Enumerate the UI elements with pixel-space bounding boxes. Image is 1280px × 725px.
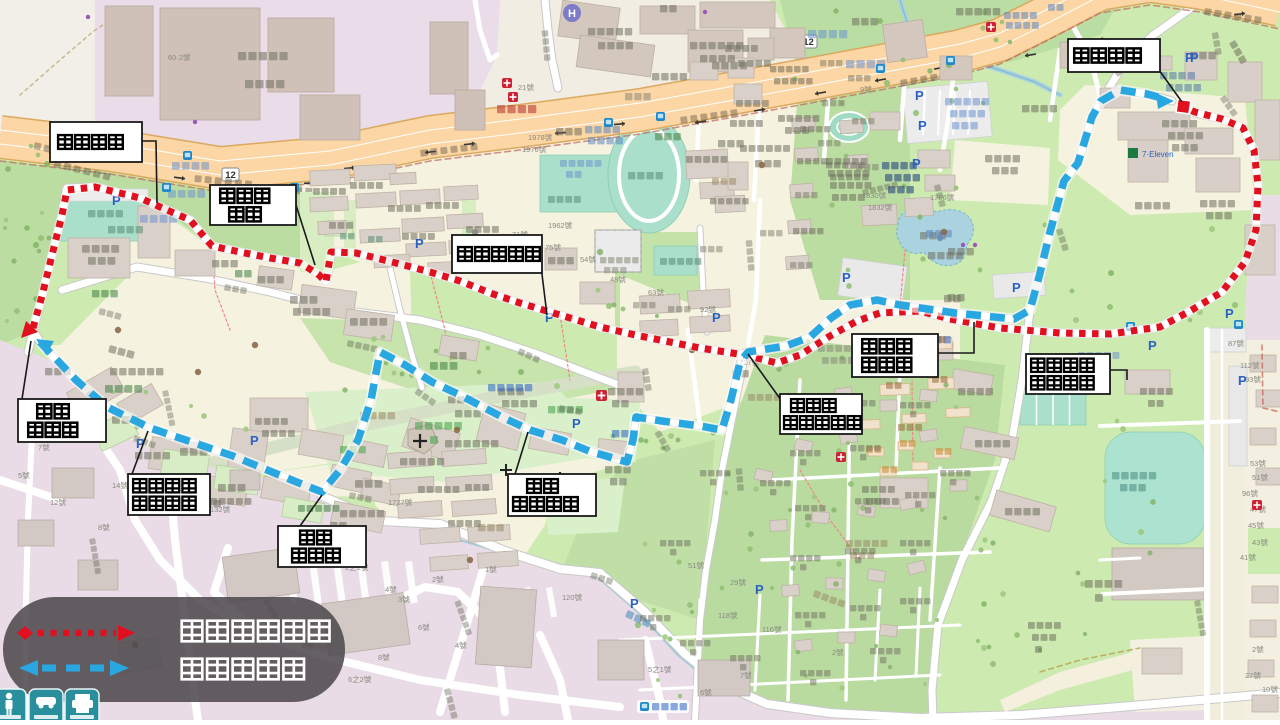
svg-text:P: P (1190, 50, 1199, 65)
svg-text:8號: 8號 (98, 522, 110, 532)
svg-text:14號: 14號 (112, 480, 128, 490)
svg-text:P: P (250, 433, 259, 448)
svg-text:P: P (1225, 306, 1234, 321)
svg-text:48號: 48號 (610, 274, 626, 284)
svg-text:P: P (915, 88, 924, 103)
svg-text:6號: 6號 (418, 622, 430, 632)
svg-text:5號: 5號 (18, 470, 30, 480)
svg-text:10號: 10號 (1262, 684, 1278, 694)
svg-text:3號: 3號 (398, 594, 410, 604)
svg-text:P: P (755, 582, 764, 597)
svg-text:8號: 8號 (378, 652, 390, 662)
svg-text:2號: 2號 (1252, 644, 1264, 654)
svg-text:132號: 132號 (210, 504, 231, 514)
svg-text:1727號: 1727號 (388, 497, 413, 507)
svg-text:45號: 45號 (1248, 520, 1264, 530)
svg-text:53號: 53號 (1250, 458, 1266, 468)
svg-text:93號: 93號 (1245, 374, 1261, 384)
svg-text:54號: 54號 (580, 254, 596, 264)
svg-text:P: P (912, 156, 921, 171)
svg-text:60·2號: 60·2號 (168, 52, 191, 62)
svg-text:P: P (918, 118, 927, 133)
svg-text:2號: 2號 (832, 647, 844, 657)
svg-text:H: H (568, 8, 576, 20)
svg-text:120號: 120號 (562, 592, 583, 602)
svg-text:P: P (1012, 280, 1021, 295)
svg-text:1976號: 1976號 (522, 144, 547, 154)
svg-text:118號: 118號 (718, 610, 738, 620)
svg-text:4號: 4號 (385, 584, 397, 594)
svg-text:51號: 51號 (688, 560, 704, 570)
svg-text:7號: 7號 (38, 442, 50, 452)
svg-text:P: P (712, 310, 721, 325)
svg-text:P: P (572, 416, 581, 431)
svg-text:P: P (415, 236, 424, 251)
svg-text:7號: 7號 (740, 670, 752, 680)
svg-text:4號: 4號 (455, 640, 467, 650)
svg-text:P: P (630, 596, 639, 611)
svg-text:9號: 9號 (860, 84, 872, 94)
svg-text:P: P (842, 270, 851, 285)
svg-text:1766號: 1766號 (930, 192, 955, 202)
svg-text:1832號: 1832號 (868, 202, 893, 212)
svg-text:29號: 29號 (730, 577, 746, 587)
svg-text:2號: 2號 (432, 574, 444, 584)
svg-text:116號: 116號 (762, 624, 782, 634)
svg-text:41號: 41號 (1240, 552, 1256, 562)
svg-text:112號: 112號 (1240, 360, 1260, 370)
svg-text:21號: 21號 (518, 82, 534, 92)
svg-text:6號: 6號 (700, 687, 712, 697)
svg-text:P: P (1148, 338, 1157, 353)
svg-text:12號: 12號 (50, 497, 66, 507)
svg-text:P: P (1238, 373, 1247, 388)
svg-text:1978號: 1978號 (528, 132, 553, 142)
svg-text:7·Eleven: 7·Eleven (1142, 150, 1174, 159)
svg-text:87號: 87號 (1228, 338, 1244, 348)
svg-text:1830號: 1830號 (862, 190, 887, 200)
svg-text:43號: 43號 (1252, 537, 1268, 547)
svg-text:1號: 1號 (485, 564, 497, 574)
svg-text:1962號: 1962號 (548, 220, 573, 230)
svg-text:63號: 63號 (648, 287, 664, 297)
svg-text:27號: 27號 (1245, 670, 1261, 680)
svg-text:51號: 51號 (1252, 472, 1268, 482)
svg-text:6之2號: 6之2號 (348, 674, 372, 684)
svg-text:96號: 96號 (1242, 488, 1258, 498)
svg-text:5之1號: 5之1號 (648, 664, 672, 674)
svg-text:75號: 75號 (545, 242, 561, 252)
